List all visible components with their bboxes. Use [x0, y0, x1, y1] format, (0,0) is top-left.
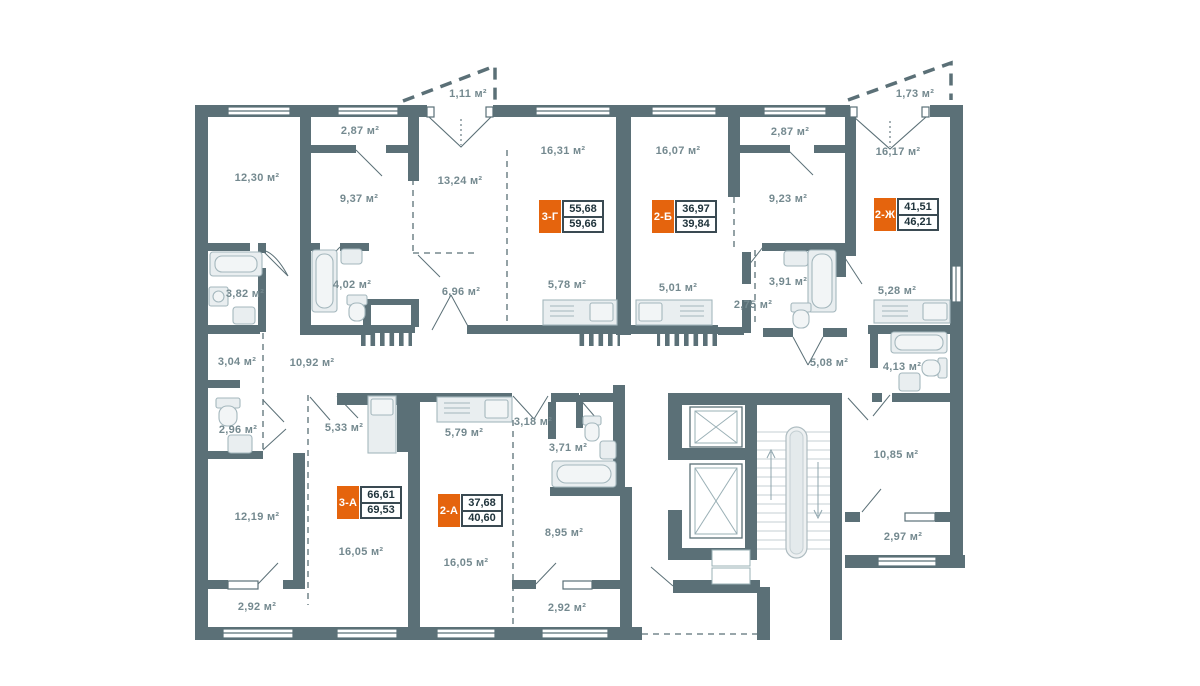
- apartment-badge[interactable]: 3-Г55,6859,66: [539, 200, 604, 233]
- room-area-label: 2,92 м²: [238, 601, 276, 613]
- apartment-area-total: 69,53: [362, 504, 400, 518]
- apartment-area-total: 46,21: [899, 216, 937, 230]
- apartment-area-living: 41,51: [899, 200, 937, 216]
- room-area-label: 2,97 м²: [884, 531, 922, 543]
- room-area-label: 5,33 м²: [325, 422, 363, 434]
- room-area-label: 8,95 м²: [545, 527, 583, 539]
- room-area-label: 10,92 м²: [290, 357, 335, 369]
- apartment-badge[interactable]: 3-А66,6169,53: [337, 486, 402, 519]
- room-area-label: 16,05 м²: [444, 557, 489, 569]
- apartment-areas: 36,9739,84: [675, 200, 717, 233]
- room-area-label: 3,71 м²: [549, 442, 587, 454]
- room-area-label: 9,23 м²: [769, 193, 807, 205]
- apartment-code: 3-Г: [539, 200, 561, 233]
- room-area-label: 5,01 м²: [659, 282, 697, 294]
- room-area-label: 12,30 м²: [235, 172, 280, 184]
- apartment-badge[interactable]: 2-Ж41,5146,21: [874, 198, 939, 231]
- apartment-areas: 41,5146,21: [897, 198, 939, 231]
- apartment-area-living: 36,97: [677, 202, 715, 218]
- room-area-label: 13,24 м²: [438, 175, 483, 187]
- room-area-label: 3,82 м²: [226, 288, 264, 300]
- room-area-label: 4,02 м²: [333, 279, 371, 291]
- floorplan-page: 12,30 м²2,87 м²9,37 м²13,24 м²1,11 м²16,…: [0, 0, 1200, 686]
- apartment-code: 2-Ж: [874, 198, 896, 231]
- room-area-label: 2,87 м²: [771, 126, 809, 138]
- room-area-label: 5,28 м²: [878, 285, 916, 297]
- apartment-code: 2-А: [438, 494, 460, 527]
- room-area-label: 5,78 м²: [548, 279, 586, 291]
- room-area-label: 2,92 м²: [548, 602, 586, 614]
- room-area-label: 2,96 м²: [219, 424, 257, 436]
- room-area-label: 16,05 м²: [339, 546, 384, 558]
- room-area-label: 3,18 м²: [514, 416, 552, 428]
- room-area-label: 3,04 м²: [218, 356, 256, 368]
- room-area-label: 4,13 м²: [883, 361, 921, 373]
- room-area-label: 10,85 м²: [874, 449, 919, 461]
- apartment-area-living: 55,68: [564, 202, 602, 218]
- room-area-label: 6,96 м²: [442, 286, 480, 298]
- room-area-label: 3,91 м²: [769, 276, 807, 288]
- room-area-label: 5,79 м²: [445, 427, 483, 439]
- apartment-areas: 55,6859,66: [562, 200, 604, 233]
- room-area-label: 16,17 м²: [876, 146, 921, 158]
- room-area-label: 1,11 м²: [449, 88, 487, 100]
- room-area-label: 5,08 м²: [810, 357, 848, 369]
- apartment-area-total: 59,66: [564, 218, 602, 232]
- room-area-label: 16,07 м²: [656, 145, 701, 157]
- plan-labels-layer: 12,30 м²2,87 м²9,37 м²13,24 м²1,11 м²16,…: [0, 0, 1200, 686]
- room-area-label: 2,75 м²: [734, 299, 772, 311]
- room-area-label: 9,37 м²: [340, 193, 378, 205]
- apartment-area-living: 66,61: [362, 488, 400, 504]
- room-area-label: 1,73 м²: [896, 88, 934, 100]
- apartment-badge[interactable]: 2-Б36,9739,84: [652, 200, 717, 233]
- apartment-areas: 37,6840,60: [461, 494, 503, 527]
- apartment-code: 2-Б: [652, 200, 674, 233]
- room-area-label: 2,87 м²: [341, 125, 379, 137]
- apartment-area-total: 39,84: [677, 218, 715, 232]
- room-area-label: 12,19 м²: [235, 511, 280, 523]
- apartment-area-total: 40,60: [463, 512, 501, 526]
- apartment-area-living: 37,68: [463, 496, 501, 512]
- room-area-label: 16,31 м²: [541, 145, 586, 157]
- apartment-areas: 66,6169,53: [360, 486, 402, 519]
- apartment-code: 3-А: [337, 486, 359, 519]
- apartment-badge[interactable]: 2-А37,6840,60: [438, 494, 503, 527]
